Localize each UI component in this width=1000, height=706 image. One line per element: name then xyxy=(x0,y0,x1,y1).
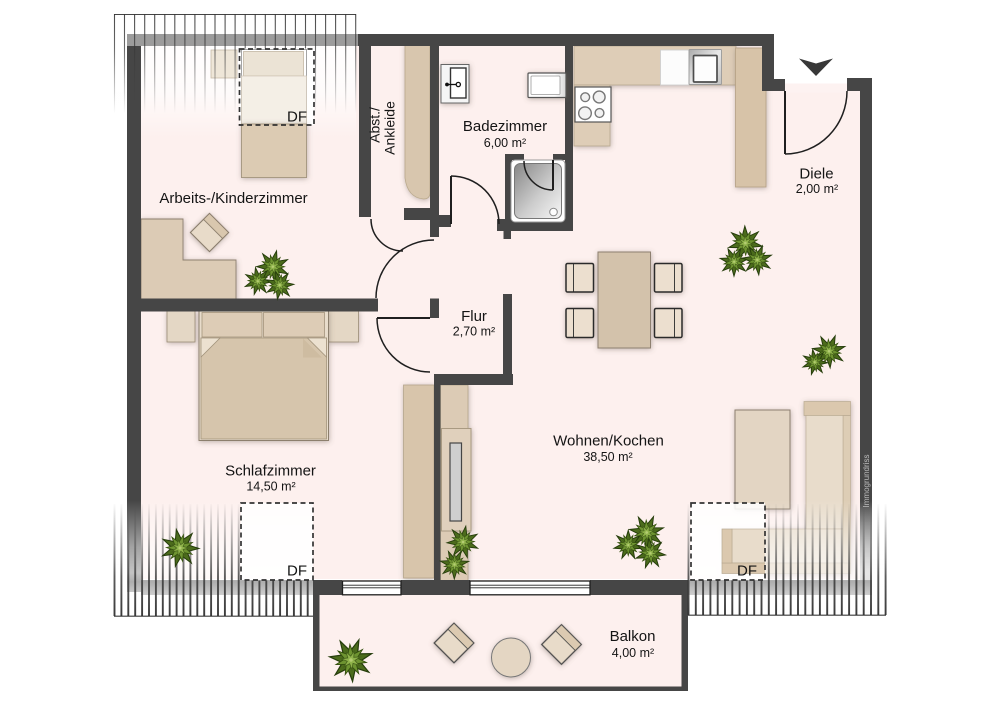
svg-text:4,00 m²: 4,00 m² xyxy=(612,646,654,660)
svg-text:DF: DF xyxy=(287,563,307,580)
svg-text:Schlafzimmer: Schlafzimmer xyxy=(225,463,316,480)
svg-text:2,70 m²: 2,70 m² xyxy=(453,325,495,339)
svg-text:Diele: Diele xyxy=(799,166,833,183)
svg-text:Balkon: Balkon xyxy=(610,628,656,645)
svg-text:Wohnen/Kochen: Wohnen/Kochen xyxy=(553,433,664,450)
svg-text:38,50 m²: 38,50 m² xyxy=(583,450,632,464)
svg-text:Flur: Flur xyxy=(461,308,487,325)
svg-text:Abst./: Abst./ xyxy=(367,107,383,143)
svg-text:Immogrundriss: Immogrundriss xyxy=(862,455,871,508)
svg-text:DF: DF xyxy=(737,563,757,580)
svg-text:14,50 m²: 14,50 m² xyxy=(246,480,295,494)
svg-text:Arbeits-/Kinderzimmer: Arbeits-/Kinderzimmer xyxy=(159,190,307,207)
svg-text:DF: DF xyxy=(287,109,307,126)
svg-text:2,00 m²: 2,00 m² xyxy=(796,182,838,196)
svg-text:6,00 m²: 6,00 m² xyxy=(484,136,526,150)
svg-text:Ankleide: Ankleide xyxy=(382,101,398,155)
svg-text:Badezimmer: Badezimmer xyxy=(463,118,547,135)
